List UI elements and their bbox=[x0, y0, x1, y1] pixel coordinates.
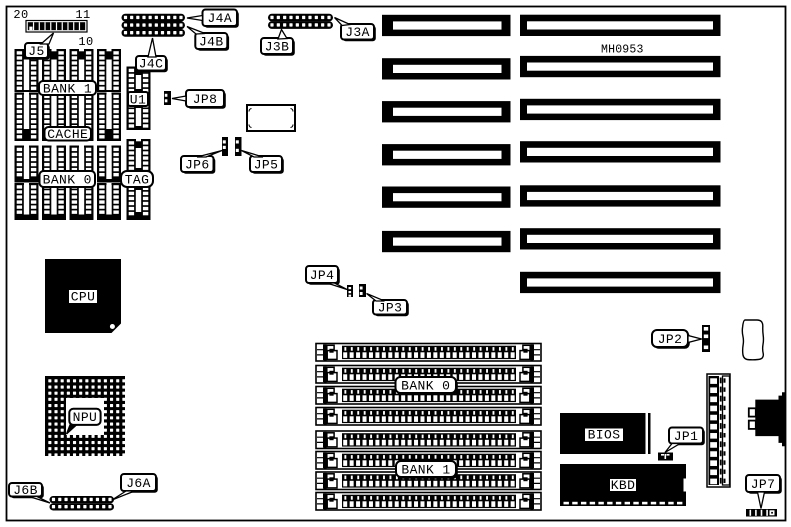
svg-text:BANK 1: BANK 1 bbox=[401, 462, 450, 477]
svg-text:BANK 1: BANK 1 bbox=[43, 81, 92, 96]
svg-text:10: 10 bbox=[78, 35, 93, 49]
svg-text:BANK 0: BANK 0 bbox=[43, 172, 92, 187]
svg-text:KBD: KBD bbox=[611, 478, 636, 493]
svg-text:11: 11 bbox=[75, 8, 90, 22]
svg-text:JP4: JP4 bbox=[310, 268, 335, 283]
svg-text:BANK 0: BANK 0 bbox=[401, 378, 450, 393]
svg-text:J3B: J3B bbox=[265, 39, 290, 54]
svg-text:J3A: J3A bbox=[345, 25, 370, 40]
svg-text:J6A: J6A bbox=[126, 476, 151, 491]
svg-text:JP8: JP8 bbox=[193, 92, 218, 107]
svg-text:JP5: JP5 bbox=[254, 157, 279, 172]
svg-text:J4B: J4B bbox=[199, 34, 224, 49]
svg-text:CACHE: CACHE bbox=[47, 127, 88, 142]
svg-text:J4A: J4A bbox=[207, 11, 232, 26]
svg-text:JP3: JP3 bbox=[378, 301, 403, 316]
svg-text:BIOS: BIOS bbox=[588, 428, 621, 443]
svg-text:TAG: TAG bbox=[125, 172, 150, 187]
svg-text:JP7: JP7 bbox=[751, 477, 776, 492]
svg-text:MH0953: MH0953 bbox=[601, 44, 644, 57]
svg-text:J6B: J6B bbox=[13, 483, 38, 498]
svg-text:JP2: JP2 bbox=[658, 332, 683, 347]
svg-text:J5: J5 bbox=[28, 44, 44, 59]
svg-text:JP1: JP1 bbox=[674, 429, 699, 444]
svg-text:CPU: CPU bbox=[71, 290, 96, 305]
svg-text:20: 20 bbox=[13, 8, 28, 22]
svg-text:J4C: J4C bbox=[139, 57, 164, 72]
svg-text:NPU: NPU bbox=[73, 410, 98, 425]
svg-text:U1: U1 bbox=[130, 92, 146, 107]
svg-text:JP6: JP6 bbox=[185, 157, 210, 172]
